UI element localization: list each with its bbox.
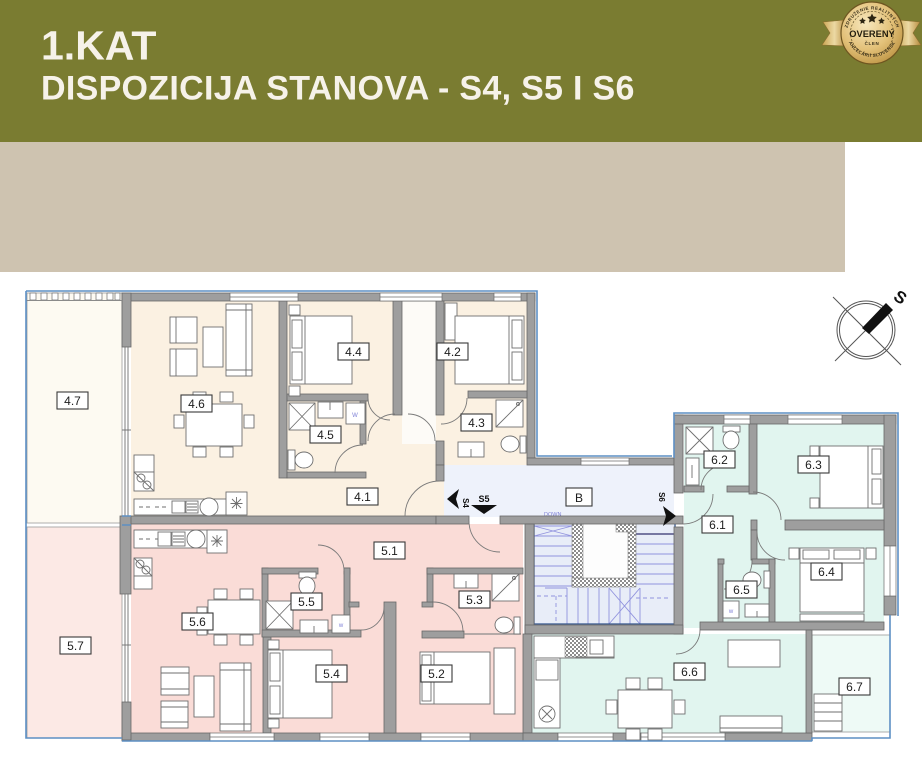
svg-text:6.1: 6.1 [709,518,726,532]
svg-text:6.7: 6.7 [846,680,863,694]
svg-text:4.4: 4.4 [345,345,362,359]
svg-text:4.3: 4.3 [468,416,485,430]
svg-text:5.6: 5.6 [189,615,206,629]
svg-text:6.3: 6.3 [805,458,822,472]
svg-text:B: B [575,491,583,505]
svg-text:5.2: 5.2 [428,667,445,681]
svg-text:6.2: 6.2 [711,453,728,467]
svg-text:5.7: 5.7 [67,639,84,653]
svg-text:4.6: 4.6 [188,397,205,411]
svg-text:OVERENÝ: OVERENÝ [849,28,895,39]
svg-text:6.4: 6.4 [818,565,835,579]
svg-text:4.2: 4.2 [444,345,461,359]
svg-text:4.5: 4.5 [317,428,334,442]
svg-text:1.KAT: 1.KAT [41,23,156,69]
svg-text:6.6: 6.6 [681,665,698,679]
svg-text:DISPOZICIJA STANOVA - S4, S5 I: DISPOZICIJA STANOVA - S4, S5 I S6 [41,70,635,108]
svg-text:5.1: 5.1 [381,544,398,558]
svg-text:5.5: 5.5 [298,595,315,609]
svg-text:w: w [338,623,344,629]
svg-text:5.3: 5.3 [466,593,483,607]
svg-text:ČLEN: ČLEN [865,40,880,46]
svg-text:5.4: 5.4 [323,667,340,681]
svg-text:w: w [728,609,734,615]
svg-text:4.7: 4.7 [64,394,81,408]
svg-text:S4: S4 [461,498,470,508]
svg-text:6.5: 6.5 [733,583,750,597]
svg-text:S5: S5 [478,494,489,504]
svg-text:W: W [352,413,358,419]
svg-text:S6: S6 [657,492,666,502]
svg-text:4.1: 4.1 [354,490,371,504]
svg-text:S: S [890,286,910,308]
